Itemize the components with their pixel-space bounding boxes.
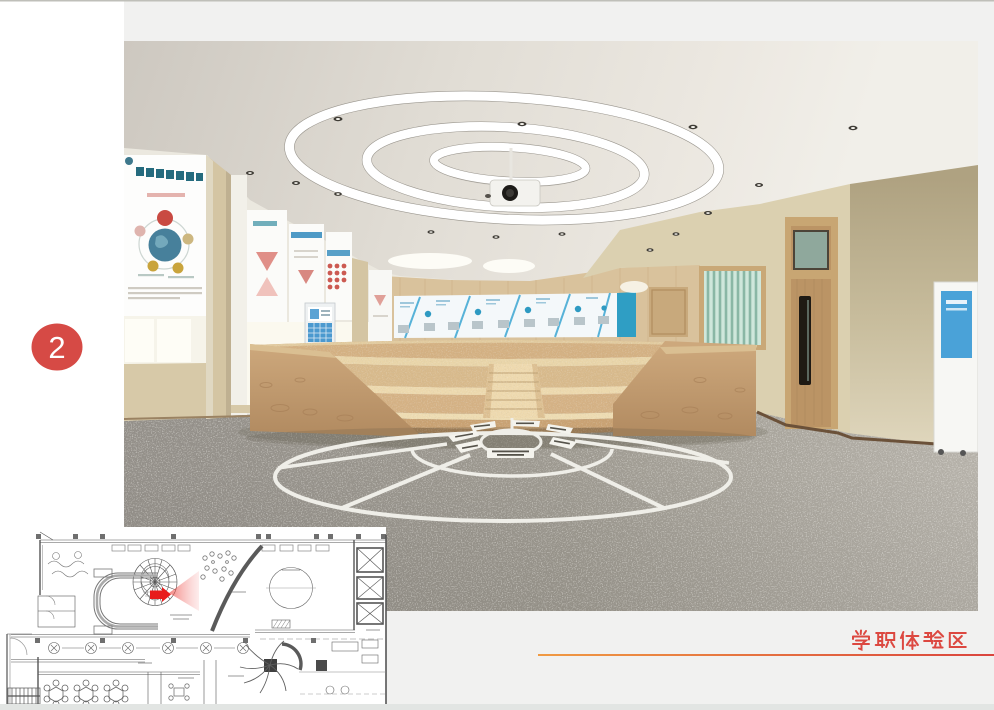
svg-text:2: 2 [48,330,65,365]
